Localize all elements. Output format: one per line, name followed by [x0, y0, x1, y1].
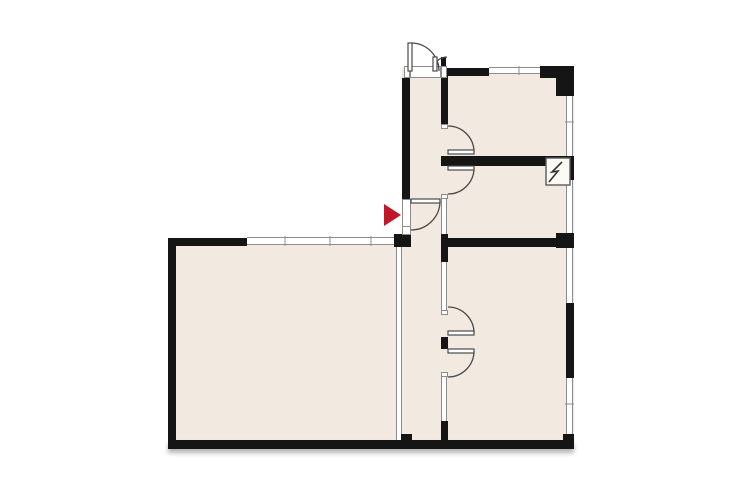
wall-right-exterior-solid [566, 303, 574, 378]
wall-hallway-right-mid [441, 234, 448, 262]
wall-hallway-right-top [441, 76, 448, 124]
wall-top-right-corner-step [556, 78, 574, 96]
door-jamb-room-bottom-right-lower [441, 372, 448, 377]
door-jamb-entrance-sill [402, 226, 411, 235]
door-jamb-room-middle-right [441, 194, 448, 199]
floor-plan-canvas [0, 0, 740, 493]
door-jamb-entrance [402, 199, 411, 227]
wall-bottom-exterior [168, 440, 574, 449]
wall-hallway-left-exterior [402, 78, 410, 199]
wall-divider-lower [441, 238, 566, 247]
wall-large-room-top [168, 238, 247, 246]
wall-divider-upper [441, 156, 574, 166]
wall-hallway-right-bottom [441, 421, 448, 449]
wall-divider-upper-right-end [566, 156, 574, 180]
entrance-arrow-icon [384, 204, 401, 226]
wall-junction-entrance-bottom [394, 234, 411, 247]
hallway-right-wall-segment [441, 376, 447, 421]
window-right-4 [566, 378, 573, 434]
door-threshold-top [410, 66, 441, 78]
door-jamb-top-right [441, 66, 447, 78]
partition-large-room-hallway [396, 246, 402, 440]
wall-top-exterior [447, 68, 489, 76]
floor-area-right-wing [402, 68, 574, 449]
wall-top-right-corner [540, 66, 574, 78]
window-top-exterior [489, 67, 540, 74]
door-jamb-room-top-right [441, 124, 448, 129]
wall-left-exterior [168, 238, 176, 449]
hallway-right-wall-segment [441, 198, 447, 234]
window-large-room-top [247, 237, 394, 245]
window-right-3 [566, 248, 573, 303]
floor-area-large-room [168, 238, 402, 449]
hallway-right-wall-segment [441, 262, 447, 310]
window-right-2 [566, 180, 573, 233]
wall-stub-bottom [401, 434, 412, 441]
window-right-1 [566, 96, 573, 156]
wall-hallway-right-doorpost [441, 337, 448, 349]
door-jamb-room-bottom-right-upper [441, 310, 448, 315]
